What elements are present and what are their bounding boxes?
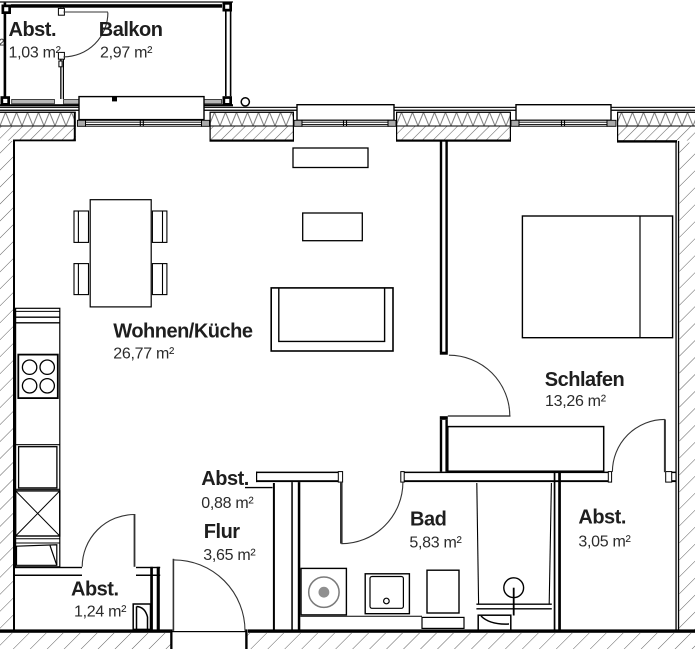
svg-text:Bad: Bad	[410, 509, 446, 531]
svg-text:13,26 m²: 13,26 m²	[545, 393, 607, 410]
svg-text:26,77 m²: 26,77 m²	[113, 346, 175, 363]
svg-text:Balkon: Balkon	[99, 19, 163, 41]
svg-text:3,65 m²: 3,65 m²	[203, 547, 256, 564]
svg-text:Abst.: Abst.	[578, 507, 626, 529]
svg-text:Wohnen/Küche: Wohnen/Küche	[113, 321, 253, 343]
svg-text:Schlafen: Schlafen	[545, 369, 624, 391]
svg-text:Abst.: Abst.	[9, 19, 57, 41]
svg-text:5,83 m²: 5,83 m²	[409, 535, 462, 552]
svg-text:0,88 m²: 0,88 m²	[201, 495, 254, 512]
svg-text:1,03 m²: 1,03 m²	[9, 44, 62, 61]
svg-text:2,97 m²: 2,97 m²	[100, 44, 153, 61]
svg-text:Abst.: Abst.	[201, 468, 249, 490]
svg-text:Abst.: Abst.	[71, 579, 119, 601]
svg-text:1,24 m²: 1,24 m²	[74, 604, 127, 621]
svg-text:3,05 m²: 3,05 m²	[578, 534, 631, 551]
svg-text:Flur: Flur	[204, 521, 240, 543]
